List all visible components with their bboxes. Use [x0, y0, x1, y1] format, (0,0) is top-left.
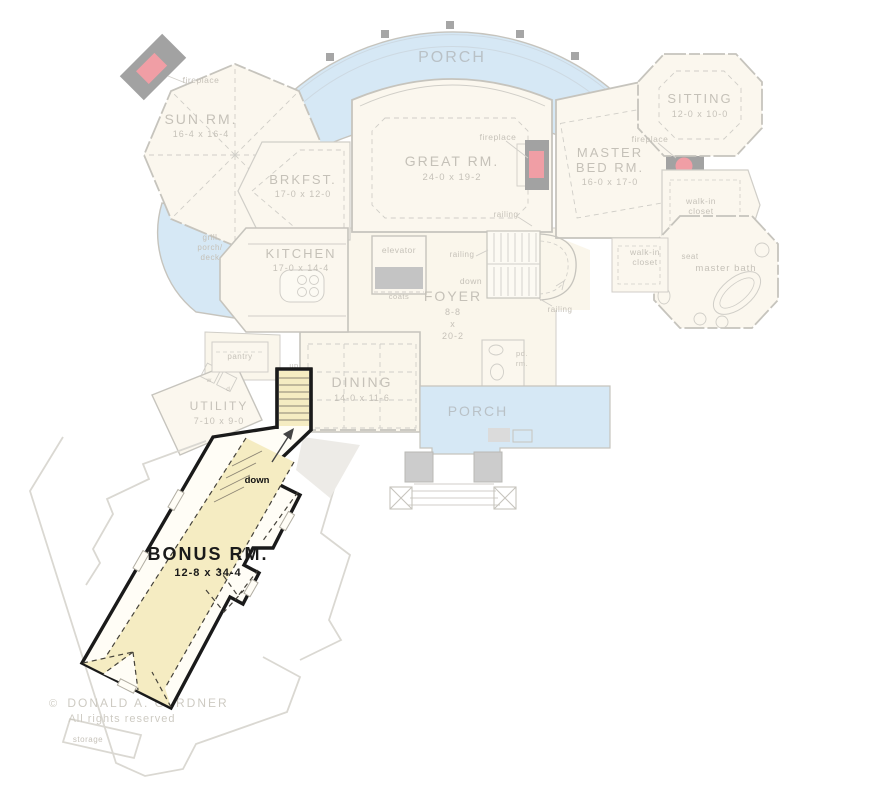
railing-label: railing [494, 210, 519, 219]
walkin-lower-label-2: closet [632, 257, 657, 267]
great-room-dims: 24-0 x 19-2 [422, 172, 481, 183]
master-bed-label-1: MASTER [577, 145, 643, 160]
porch-furniture [488, 428, 510, 442]
utility-dims: 7-10 x 9-0 [194, 416, 245, 426]
master-bath-label: master bath [695, 263, 756, 274]
foyer-dims-l: 20-2 [442, 331, 464, 341]
bonus-room-dims: 12-8 x 34-4 [174, 567, 241, 579]
grill-porch-label-2: porch/ [197, 243, 223, 252]
walkin-lower-label-1: walk-in [629, 247, 660, 257]
fireplace-label: fireplace [183, 75, 220, 85]
foyer-dims-w: 8-8 [445, 307, 461, 317]
porch-steps [408, 484, 500, 505]
kitchen-label: KITCHEN [265, 246, 336, 261]
copyright-notice: © DONALD A. GARDNER All rights reserved [49, 696, 229, 725]
pantry-label: pantry [227, 352, 252, 361]
bonus-room-label: BONUS RM. [148, 544, 269, 564]
powder-label-1: pd. [516, 349, 528, 358]
walkin-upper-label-1: walk-in [685, 196, 716, 206]
dining-label: DINING [332, 374, 393, 390]
sitting-label: SITTING [667, 91, 732, 106]
dryer-label: d [226, 386, 230, 393]
foyer-label: FOYER [424, 288, 482, 304]
porch-bottom-label: PORCH [448, 403, 509, 419]
grill-porch-label-1: grill [203, 233, 218, 242]
floor-plan-page: PORCH fireplace SUN RM. 16-4 x 16-4 BRKF… [0, 0, 877, 800]
elevator-label: elevator [382, 245, 416, 255]
porch-column [405, 452, 433, 482]
sun-room-label: SUN RM. [164, 111, 237, 127]
breakfast-dims: 17-0 x 12-0 [275, 189, 332, 199]
powder-label-2: rm. [516, 359, 528, 368]
porch-top-label: PORCH [418, 49, 486, 66]
seat-label: seat [681, 252, 698, 261]
master-bed-dims: 16-0 x 17-0 [582, 177, 639, 187]
great-room-label: GREAT RM. [405, 153, 500, 169]
washer-label: w [206, 377, 212, 384]
copyright-symbol: © [49, 698, 57, 710]
foyer-dims-x: x [450, 319, 456, 329]
fireplace-label: fireplace [632, 134, 669, 144]
floor-plan-svg: PORCH fireplace SUN RM. 16-4 x 16-4 BRKF… [0, 0, 877, 800]
railing-label: railing [548, 305, 573, 314]
foyer-down-label: down [460, 276, 482, 286]
bonus-down-label: down [245, 475, 270, 486]
grill-porch-label-3: deck [201, 253, 220, 262]
master-bed-label-2: BED RM. [576, 160, 644, 175]
dining-dims: 14-0 x 11-6 [334, 393, 390, 403]
railing-label: railing [450, 250, 475, 259]
fireplace-label: fireplace [480, 132, 517, 142]
utility-label: UTILITY [190, 399, 249, 413]
kitchen-dims: 17-0 x 14-4 [273, 263, 330, 273]
copyright-rights: All rights reserved [68, 713, 175, 725]
sitting-dims: 12-0 x 10-0 [672, 109, 729, 119]
kitchen [220, 228, 348, 332]
breakfast-label: BRKFST. [269, 172, 336, 187]
coats-label: coats [389, 292, 409, 301]
walkin-upper-label-2: closet [688, 206, 713, 216]
porch-column [474, 452, 502, 482]
sun-room-dims: 16-4 x 16-4 [173, 129, 230, 139]
storage-label: storage [73, 735, 103, 744]
kitchen-island [280, 270, 324, 302]
